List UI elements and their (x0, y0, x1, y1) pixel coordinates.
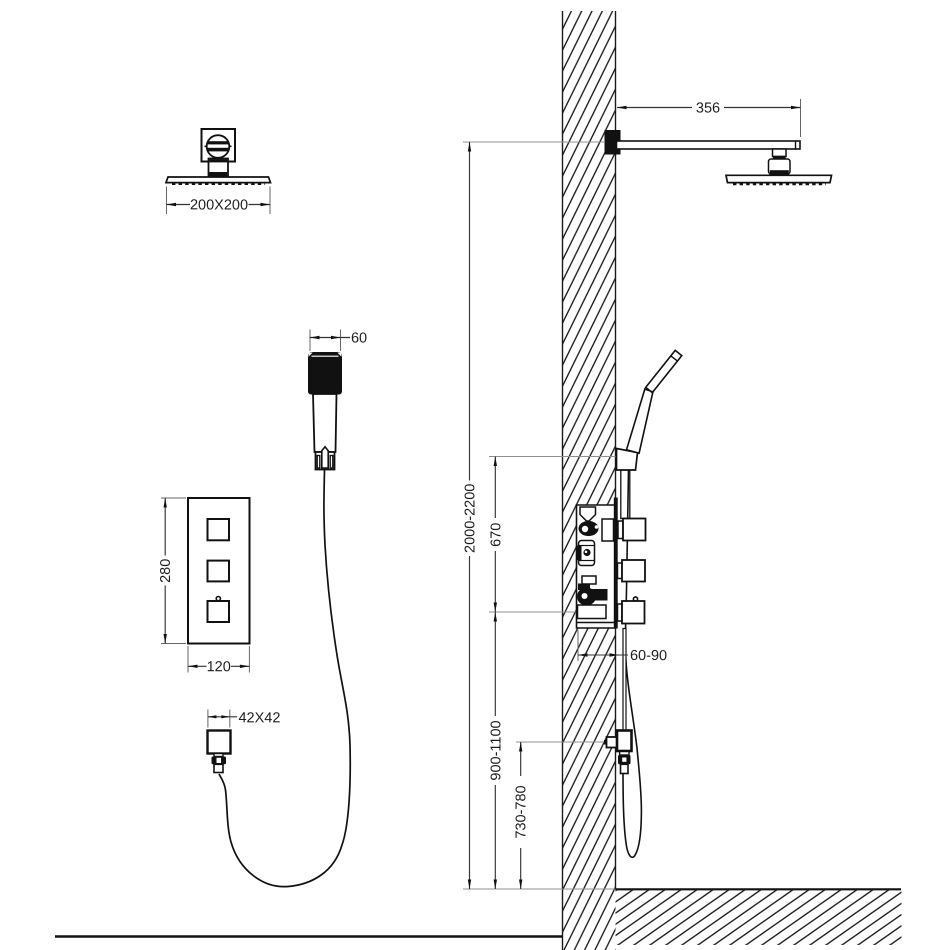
svg-text:280: 280 (158, 559, 174, 583)
svg-text:670: 670 (488, 523, 504, 547)
svg-text:2000-2200: 2000-2200 (463, 484, 479, 553)
svg-text:120: 120 (207, 659, 231, 675)
svg-text:730-780: 730-780 (514, 785, 530, 838)
svg-text:60: 60 (351, 331, 367, 347)
svg-text:900-1100: 900-1100 (488, 720, 504, 780)
svg-text:356: 356 (696, 100, 720, 116)
svg-text:200X200: 200X200 (190, 197, 248, 213)
svg-text:42X42: 42X42 (238, 710, 280, 726)
svg-text:60-90: 60-90 (630, 648, 667, 664)
